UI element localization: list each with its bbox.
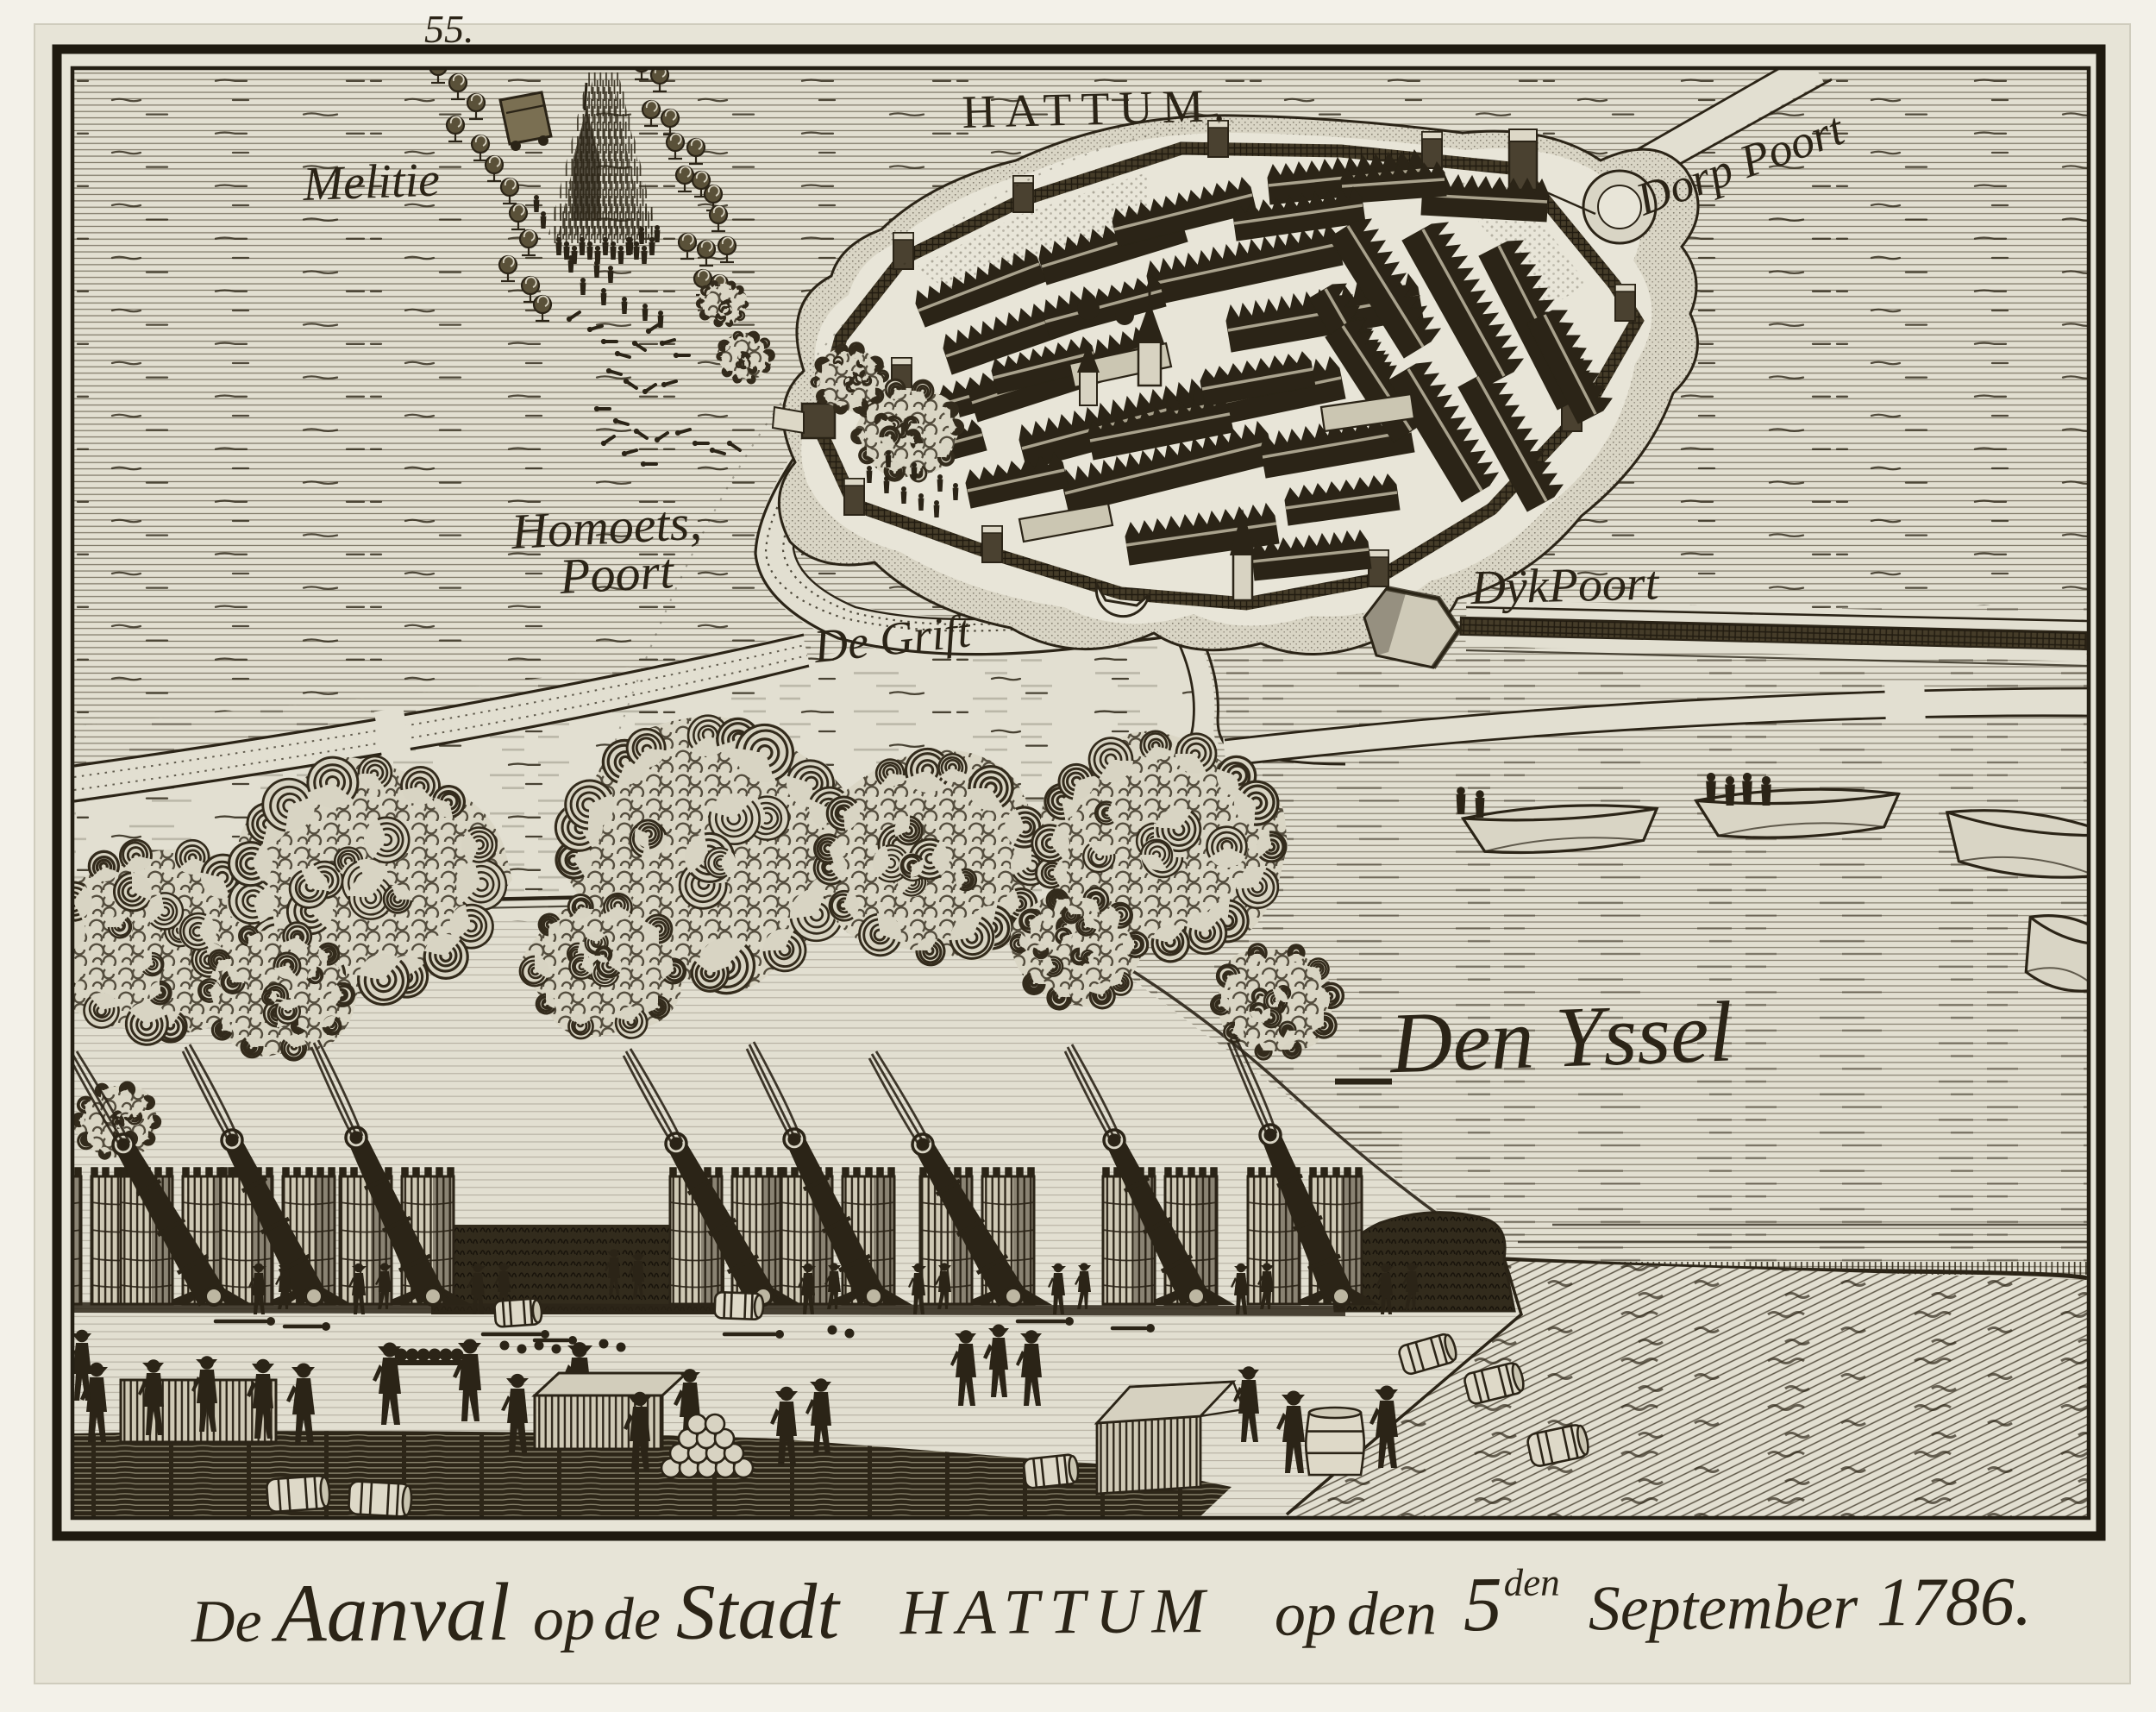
svg-text:September: September [1589, 1571, 1859, 1644]
svg-text:HATTUM.: HATTUM. [962, 79, 1235, 138]
svg-text:De: De [191, 1589, 262, 1656]
svg-text:Melitie: Melitie [301, 153, 441, 211]
svg-text:op: op [1275, 1579, 1337, 1648]
svg-text:Den Yssel: Den Yssel [1387, 983, 1734, 1091]
svg-text:Aanval: Aanval [271, 1565, 511, 1659]
svg-text:DÿkPoort: DÿkPoort [1470, 556, 1661, 615]
svg-text:den: den [1347, 1578, 1437, 1648]
svg-text:Poort: Poort [557, 542, 676, 605]
svg-text:den: den [1504, 1561, 1560, 1604]
svg-text:Stadt: Stadt [676, 1567, 842, 1656]
svg-text:op: op [533, 1583, 595, 1652]
svg-text:1786.: 1786. [1877, 1564, 2033, 1640]
svg-text:HATTUM: HATTUM [899, 1576, 1216, 1648]
svg-text:5: 5 [1463, 1562, 1503, 1647]
svg-text:de: de [604, 1586, 661, 1652]
svg-text:55.: 55. [424, 7, 474, 51]
